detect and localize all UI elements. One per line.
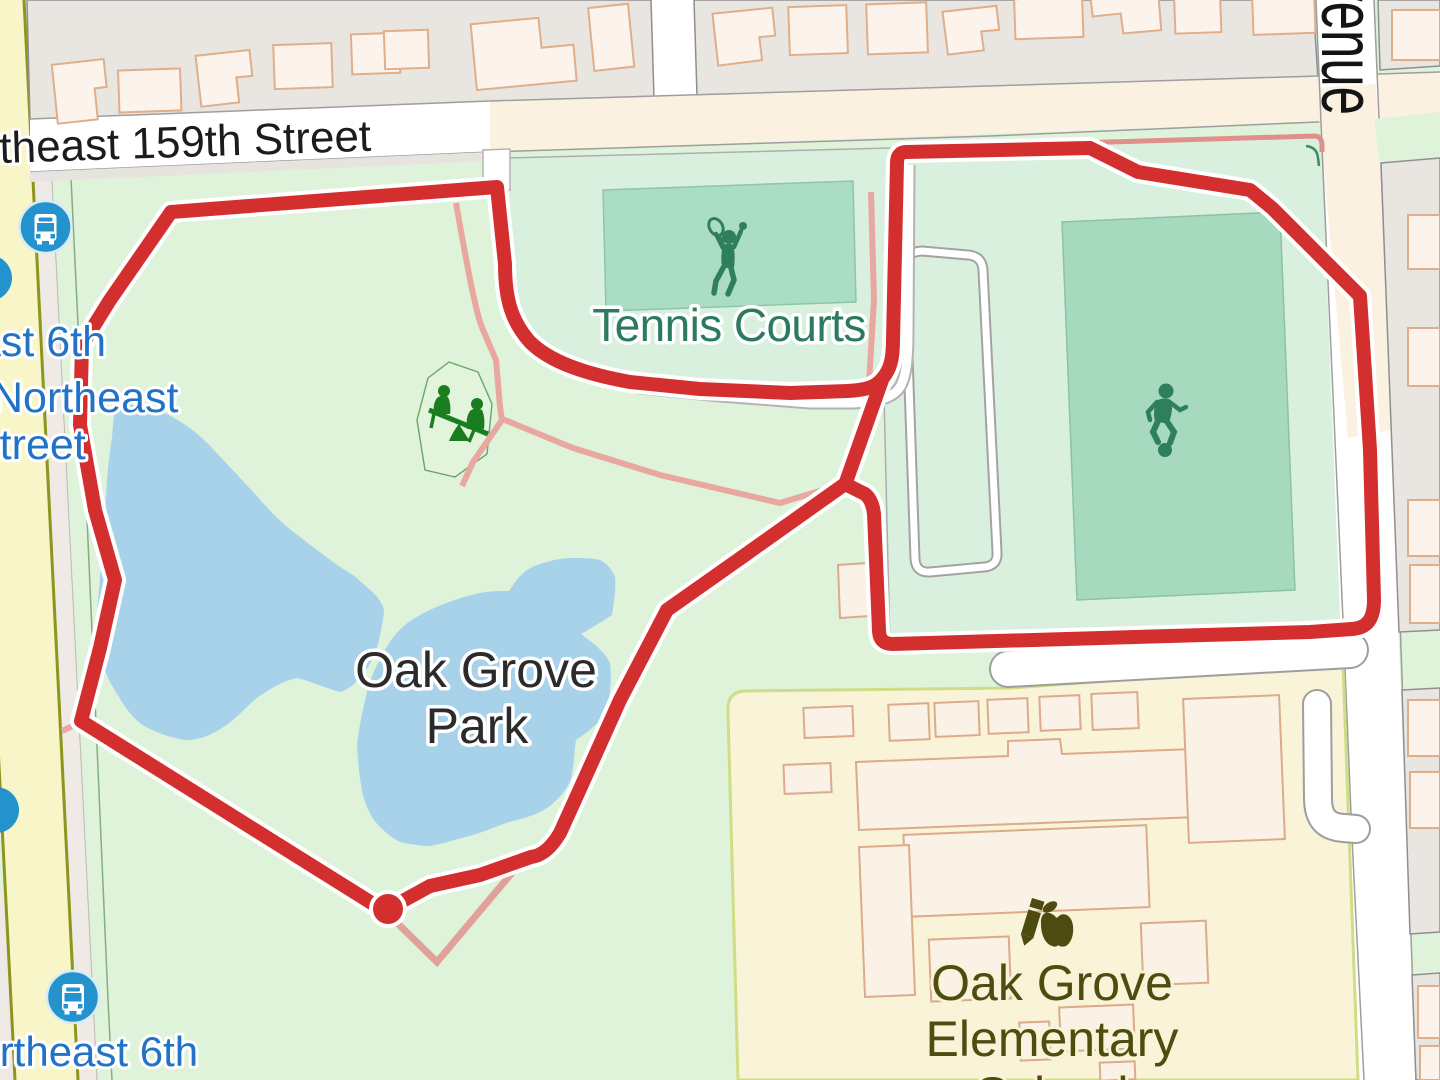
svg-text:Street: Street <box>0 421 86 469</box>
svg-text:Northeast: Northeast <box>0 374 178 422</box>
svg-text:School: School <box>976 1067 1129 1080</box>
svg-text:Elementary: Elementary <box>926 1011 1179 1067</box>
svg-text:Avenue: Avenue <box>1306 0 1392 115</box>
svg-text:Park: Park <box>426 698 530 754</box>
svg-text:Tennis Courts: Tennis Courts <box>592 299 865 351</box>
svg-text:Northeast 6th: Northeast 6th <box>0 1028 198 1075</box>
svg-text:east 6th: east 6th <box>0 318 106 366</box>
svg-text:Oak Grove: Oak Grove <box>355 642 597 698</box>
svg-text:Oak Grove: Oak Grove <box>931 955 1173 1011</box>
